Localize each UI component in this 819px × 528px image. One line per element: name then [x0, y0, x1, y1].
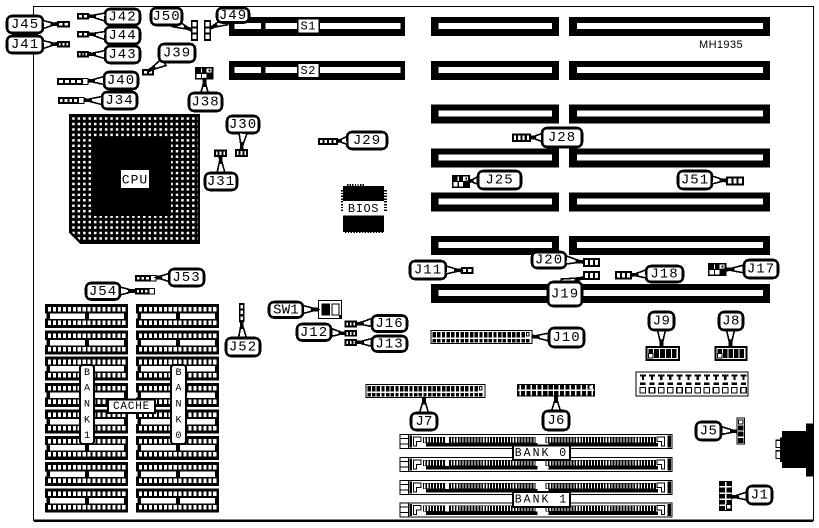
svg-text:N: N [175, 400, 181, 411]
svg-text:J5: J5 [700, 424, 718, 440]
svg-text:J38: J38 [191, 95, 219, 111]
svg-text:J10: J10 [552, 330, 580, 346]
svg-text:SW1: SW1 [273, 302, 299, 318]
svg-text:0: 0 [175, 431, 181, 442]
svg-text:J17: J17 [747, 262, 775, 278]
svg-text:J9: J9 [653, 314, 671, 330]
svg-text:J16: J16 [375, 316, 403, 332]
svg-text:N: N [84, 400, 90, 411]
svg-text:BANK 0: BANK 0 [515, 447, 568, 460]
svg-text:J43: J43 [108, 47, 136, 63]
svg-text:A: A [175, 384, 181, 395]
svg-text:J54: J54 [89, 284, 117, 300]
svg-text:J28: J28 [548, 130, 576, 146]
svg-text:A: A [84, 384, 90, 395]
svg-text:J49: J49 [219, 8, 247, 24]
svg-text:J20: J20 [535, 253, 563, 269]
svg-text:J7: J7 [415, 414, 432, 430]
svg-text:J53: J53 [172, 270, 200, 286]
svg-text:J51: J51 [681, 173, 709, 189]
svg-text:S2: S2 [301, 64, 316, 78]
svg-text:J45: J45 [11, 17, 39, 33]
svg-text:S1: S1 [301, 19, 316, 33]
svg-text:J18: J18 [650, 267, 678, 283]
svg-text:J12: J12 [300, 325, 328, 341]
svg-text:J29: J29 [353, 133, 381, 149]
svg-text:K: K [175, 415, 181, 426]
svg-text:BANK 1: BANK 1 [515, 494, 568, 507]
svg-text:BIOS: BIOS [348, 202, 379, 216]
svg-text:J50: J50 [152, 9, 180, 25]
svg-text:J13: J13 [375, 336, 403, 352]
svg-text:J11: J11 [414, 263, 442, 279]
svg-text:J1: J1 [751, 488, 769, 504]
svg-text:J42: J42 [108, 10, 136, 26]
svg-text:J19: J19 [551, 287, 579, 303]
svg-text:K: K [84, 415, 90, 426]
svg-text:J41: J41 [11, 37, 39, 53]
svg-text:CPU: CPU [122, 173, 148, 188]
svg-text:1: 1 [84, 431, 90, 442]
svg-text:J40: J40 [107, 73, 135, 89]
svg-text:J31: J31 [207, 174, 235, 190]
svg-text:J39: J39 [163, 46, 191, 62]
svg-text:B: B [84, 368, 90, 379]
svg-text:J52: J52 [229, 340, 257, 356]
svg-text:J30: J30 [229, 117, 257, 133]
svg-text:CACHE: CACHE [113, 401, 150, 413]
svg-text:B: B [175, 368, 181, 379]
svg-text:J25: J25 [485, 173, 513, 189]
svg-text:MH1935: MH1935 [699, 39, 743, 51]
svg-text:J34: J34 [105, 93, 133, 109]
svg-text:J8: J8 [722, 314, 740, 330]
svg-text:J6: J6 [547, 413, 564, 429]
svg-text:J44: J44 [108, 28, 136, 44]
